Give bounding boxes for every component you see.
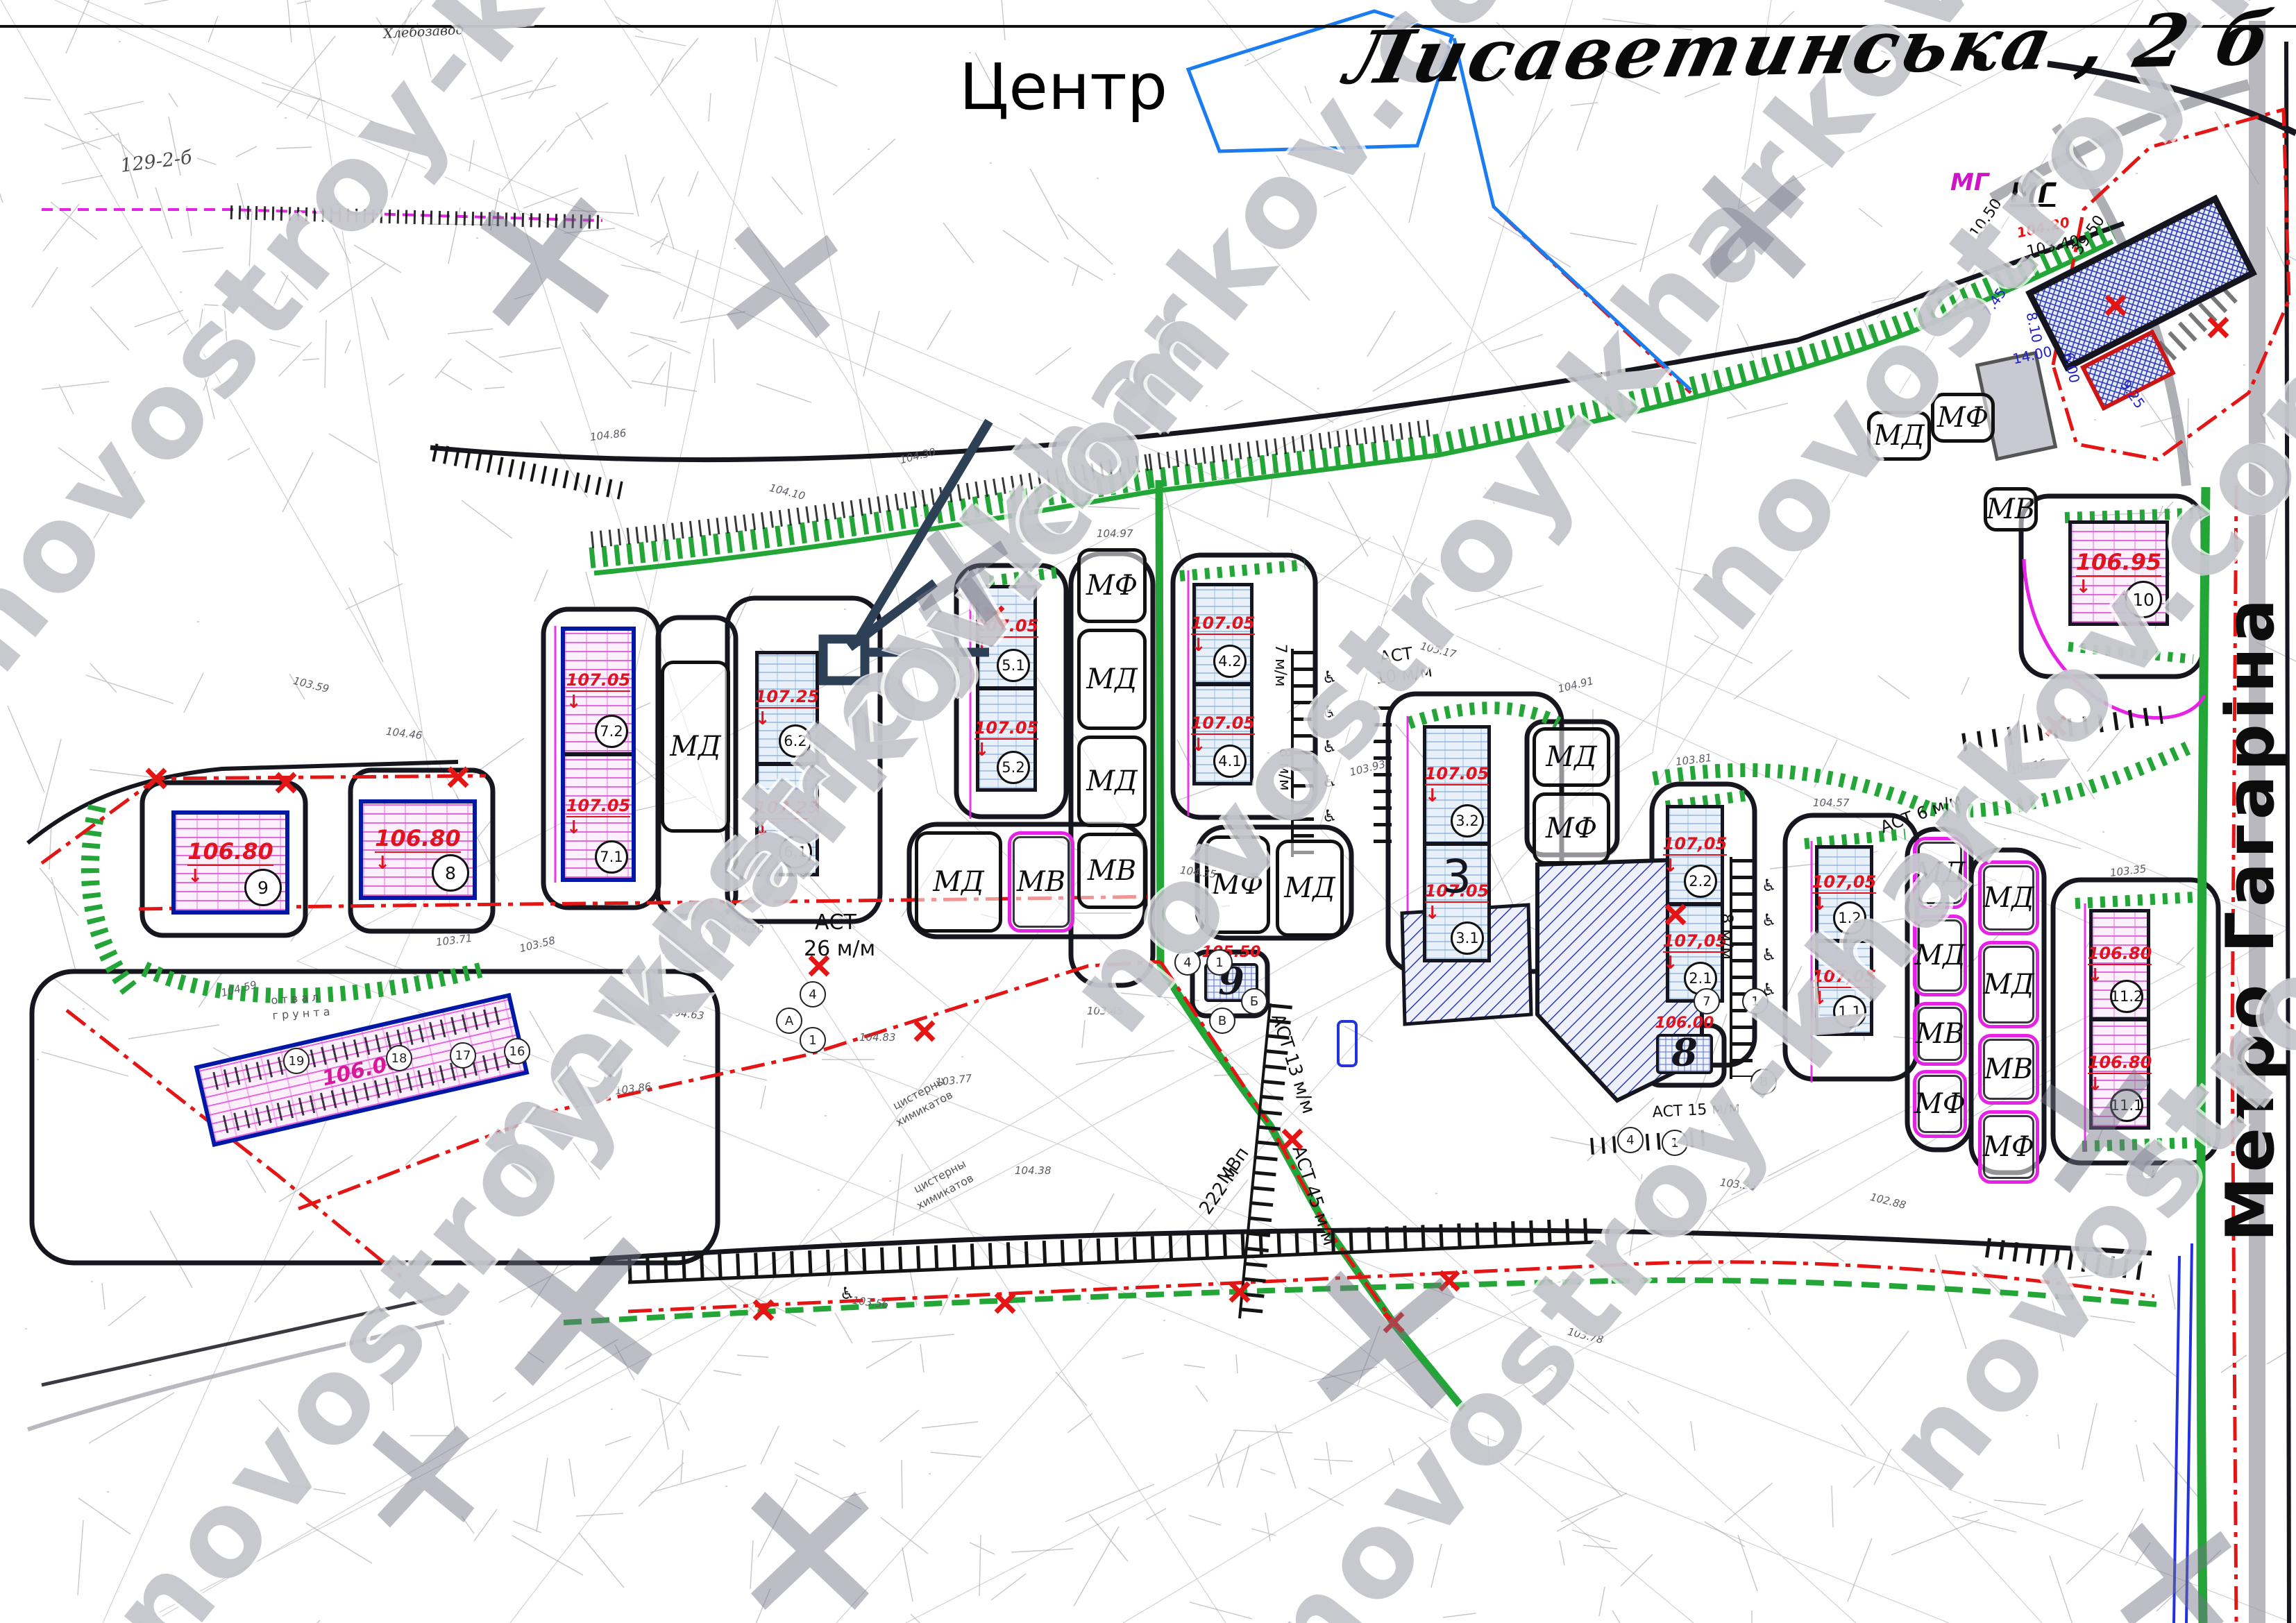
x-logo-icon (751, 1492, 869, 1610)
x-logo-icon (371, 1425, 475, 1528)
watermark-layer: novostroy-kharkov.comnovostroy-kharkov.c… (0, 0, 2296, 1623)
x-logo-icon (2119, 1522, 2234, 1623)
x-logo-icon (502, 1235, 655, 1388)
x-logo-icon (478, 195, 611, 328)
site-plan-sheet: МДМФМДМДМВМДМВМФМДМДМФМДМДМВМФМДМДМВМФМД… (0, 0, 2296, 1623)
x-logo-icon (1316, 1270, 1457, 1411)
x-logo-icon (725, 226, 840, 340)
